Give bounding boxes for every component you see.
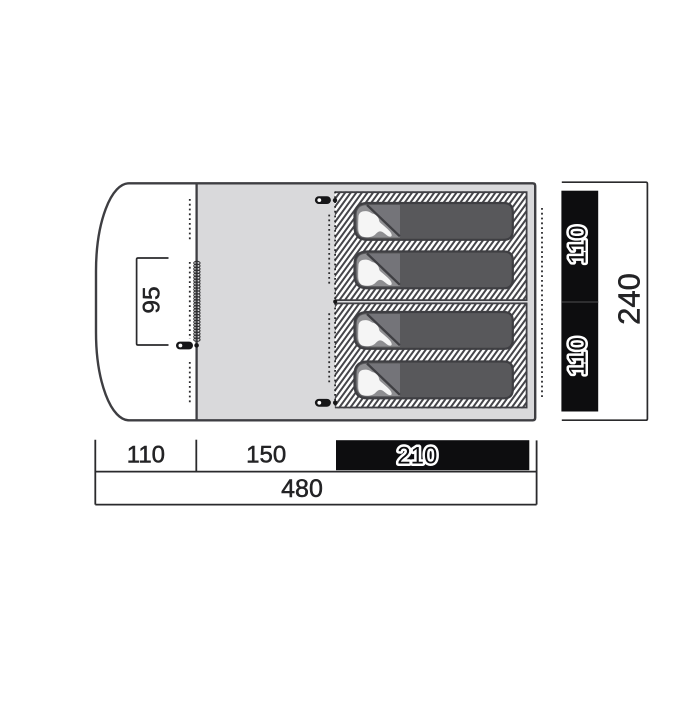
svg-text:110: 110 — [565, 225, 592, 264]
svg-text:150: 150 — [246, 442, 286, 469]
svg-text:110: 110 — [127, 442, 165, 469]
svg-text:95: 95 — [139, 286, 166, 313]
svg-text:240: 240 — [612, 273, 647, 325]
svg-text:110: 110 — [565, 337, 592, 376]
svg-text:210: 210 — [397, 442, 437, 469]
svg-text:480: 480 — [281, 475, 323, 503]
